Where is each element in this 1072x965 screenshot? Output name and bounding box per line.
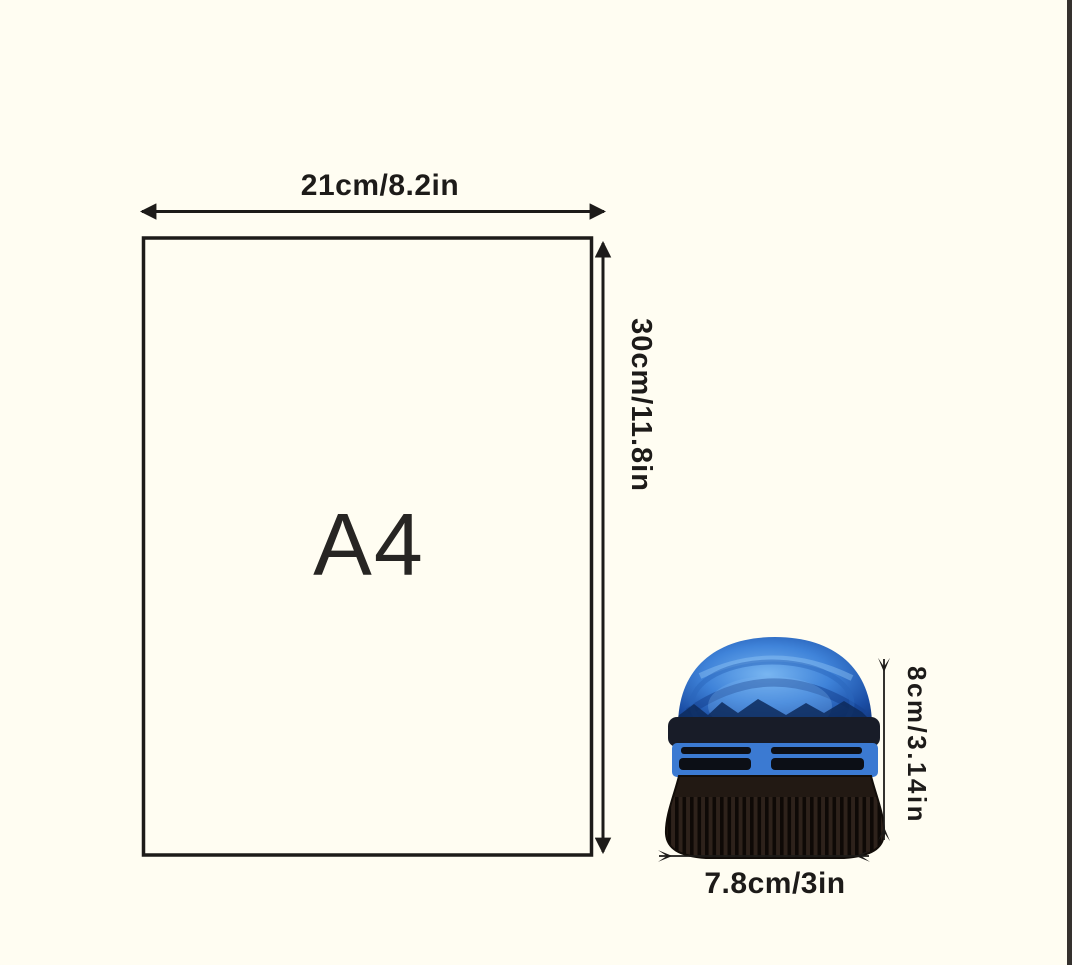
size-comparison-diagram: A4 21cm/8.2in 30cm/11.8in [0, 0, 1072, 965]
product-image [660, 637, 890, 861]
product-width-label: 7.8cm/3in [704, 867, 845, 900]
a4-height-label: 30cm/11.8in [625, 318, 657, 492]
a4-label: A4 [313, 495, 425, 594]
a4-paper-group: A4 21cm/8.2in 30cm/11.8in [142, 169, 657, 855]
right-edge-strip [1067, 0, 1072, 965]
product-base-ribs [660, 797, 890, 861]
a4-width-label: 21cm/8.2in [301, 169, 459, 202]
product-height-label: 8cm/3.14in [902, 666, 932, 824]
product-band [668, 717, 880, 747]
